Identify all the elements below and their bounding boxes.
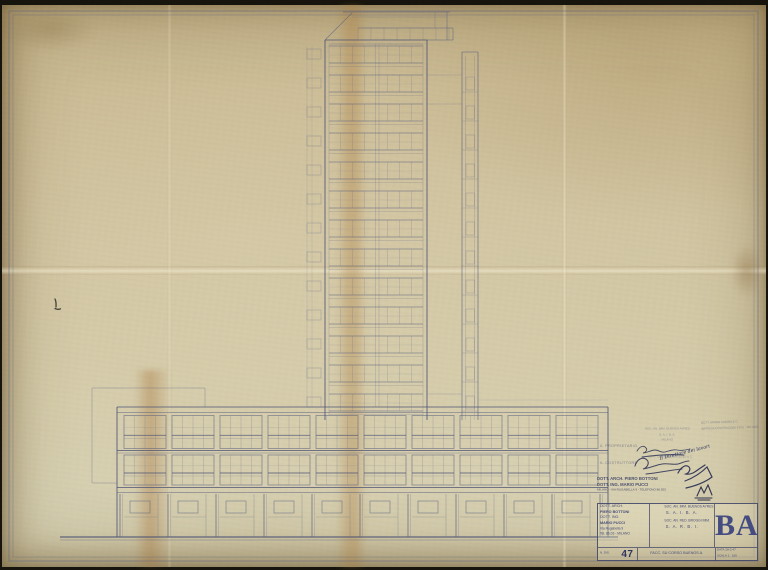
architect-stamp-line1: DOTT. ARCH. PIERO BOTTONI (597, 478, 688, 482)
ink-marks (55, 299, 61, 309)
date-row: DATA 28-2-47 (717, 549, 737, 552)
client2-name: SOC. AN. RED. BROGGI IMM. (664, 520, 699, 523)
owner-stamp-line3: MILANO (645, 439, 690, 442)
architect-stamp-line2: DOTT. ING. MARIO PUCCI (597, 484, 688, 488)
owner-stamp-line1: SOC. AN. IMM. BUENOS AYRES (645, 428, 690, 431)
stair-core-elevation (427, 52, 608, 420)
title-block-bottom-row: N. DIS. 47 FACC. SU CORSO BUENOS A. DATA… (598, 548, 757, 561)
drawing-number-label: N. DIS. (600, 552, 610, 555)
client1-sigla: S. A. I. B. A. (660, 512, 705, 516)
scale-value: 1 : 100 (728, 554, 737, 557)
owner-rubber-stamp: SOC. AN. IMM. BUENOS AYRES S. A. I. B. A… (645, 428, 734, 445)
project-monogram: BA (715, 509, 759, 543)
sheet-title: FACC. SU CORSO BUENOS A. (650, 552, 703, 556)
photographed-blueprint: DOTT. MARIO COMBA & C. IMPRESA COSTRUZIO… (0, 0, 768, 570)
owner-label: IL PROPRIETARIO (600, 445, 660, 451)
contractor-stamp-line1: DOTT. MARIO COMBA & C. (701, 421, 736, 425)
architect-stamp-line3: MILANO - VIA RUGABELLA 9 - TELEFONO 86.3… (597, 489, 662, 492)
architect-stamp: DOTT. ARCH. PIERO BOTTONI DOTT. ING. MAR… (597, 478, 727, 495)
date-value: 28-2-47 (726, 548, 736, 551)
client-cell: SOC. AN. IMM. BUENOS AYRES S. A. I. B. A… (650, 504, 715, 547)
sheet-title-cell: FACC. SU CORSO BUENOS A. (638, 548, 716, 561)
date-scale-cell: DATA 28-2-47 SCALA 1 : 100 (716, 548, 757, 561)
owner-stamp-line2: S. A. I. B. A. (645, 434, 690, 437)
tower-elevation (307, 12, 453, 420)
firm-cell: DOTT. ARCH. PIERO BOTTONI DOTT. ING. MAR… (598, 504, 650, 547)
scale-row: SCALA 1 : 100 (717, 555, 737, 558)
project-monogram-cell: BA (715, 504, 759, 547)
title-block: DOTT. ARCH. PIERO BOTTONI DOTT. ING. MAR… (597, 503, 758, 561)
client2-sigla: S. A. R. B. I. (660, 526, 705, 530)
drawing-number: 47 (621, 549, 633, 560)
client1-name: SOC. AN. IMM. BUENOS AYRES (664, 506, 699, 509)
title-block-top-row: DOTT. ARCH. PIERO BOTTONI DOTT. ING. MAR… (598, 504, 757, 548)
builder-label: IL COSTRUTTORE (600, 462, 660, 468)
drawing-number-cell: N. DIS. 47 (598, 548, 638, 561)
